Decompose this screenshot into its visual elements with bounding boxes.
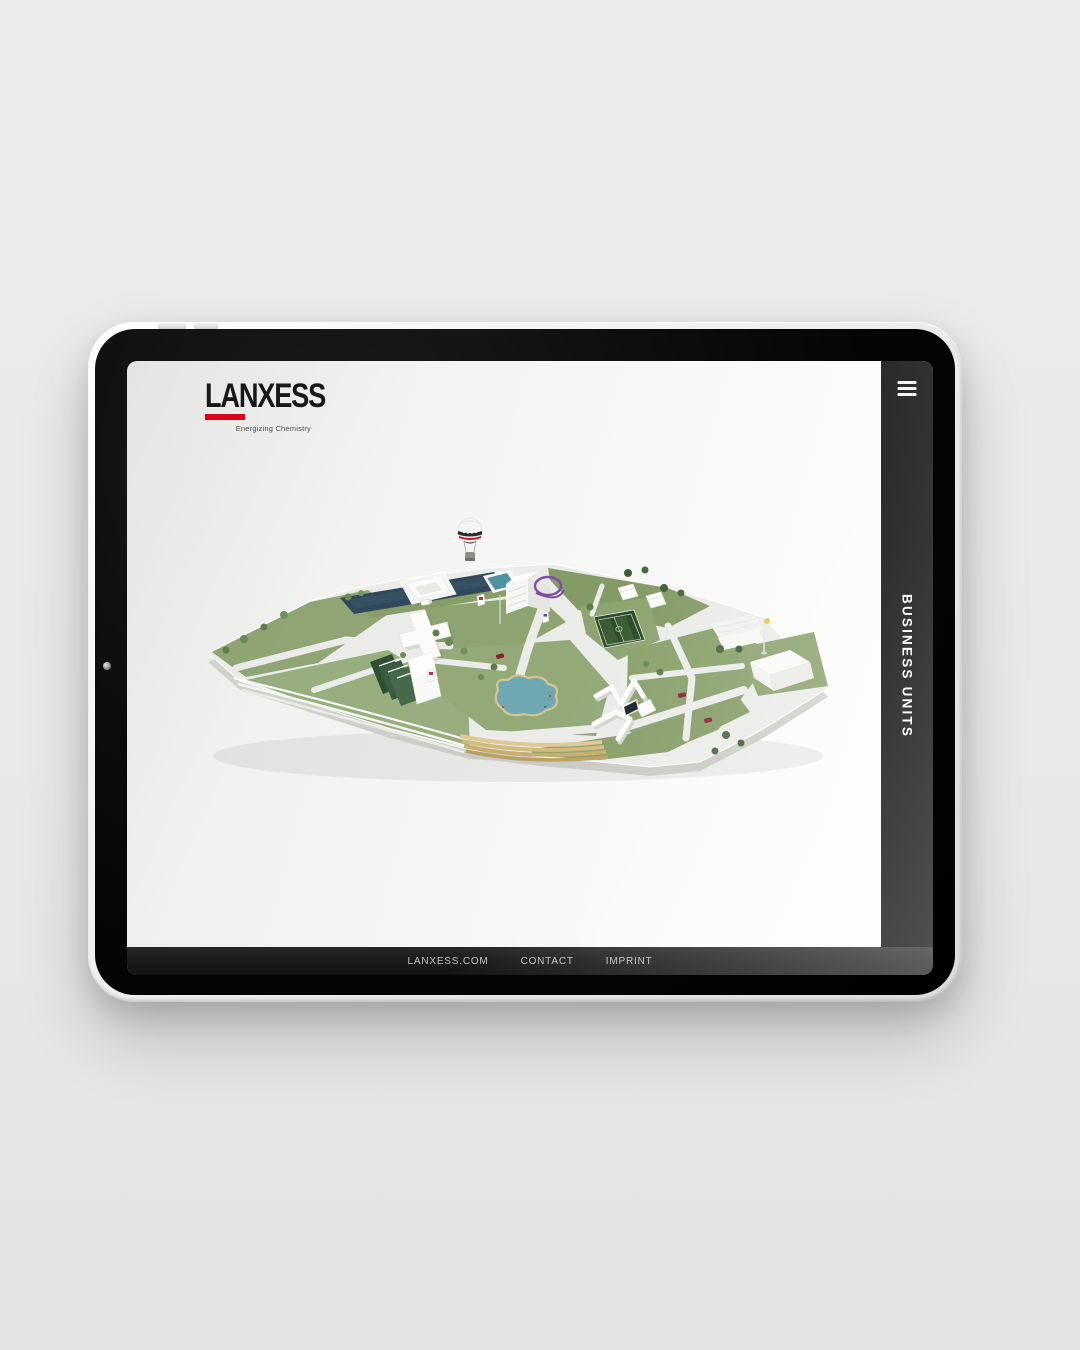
hot-air-balloon-icon (458, 518, 482, 561)
footer-link-imprint[interactable]: IMPRINT (606, 956, 653, 967)
logo-tagline: Energizing Chemistry (205, 424, 311, 433)
logo-wordmark: LANXESS (205, 383, 290, 411)
front-camera (103, 662, 111, 670)
hamburger-icon[interactable] (898, 381, 917, 400)
volume-down-button (194, 324, 218, 329)
campus-map-illustration[interactable] (198, 500, 838, 808)
lanxess-logo: LANXESS Energizing Chemistry (205, 383, 311, 433)
tablet-bezel: LANXESS Energizing Chemistry (95, 329, 955, 995)
footer-link-contact[interactable]: CONTACT (521, 956, 574, 967)
footer-link-lanxess-com[interactable]: LANXESS.COM (408, 956, 489, 967)
tablet-device: LANXESS Energizing Chemistry (88, 322, 962, 1002)
footer-bar: LANXESS.COM CONTACT IMPRINT (127, 947, 933, 975)
business-units-tab[interactable]: BUSINESS UNITS (900, 594, 915, 738)
app-screen: LANXESS Energizing Chemistry (127, 361, 933, 975)
volume-up-button (158, 324, 186, 329)
right-sidebar: BUSINESS UNITS (881, 361, 933, 975)
